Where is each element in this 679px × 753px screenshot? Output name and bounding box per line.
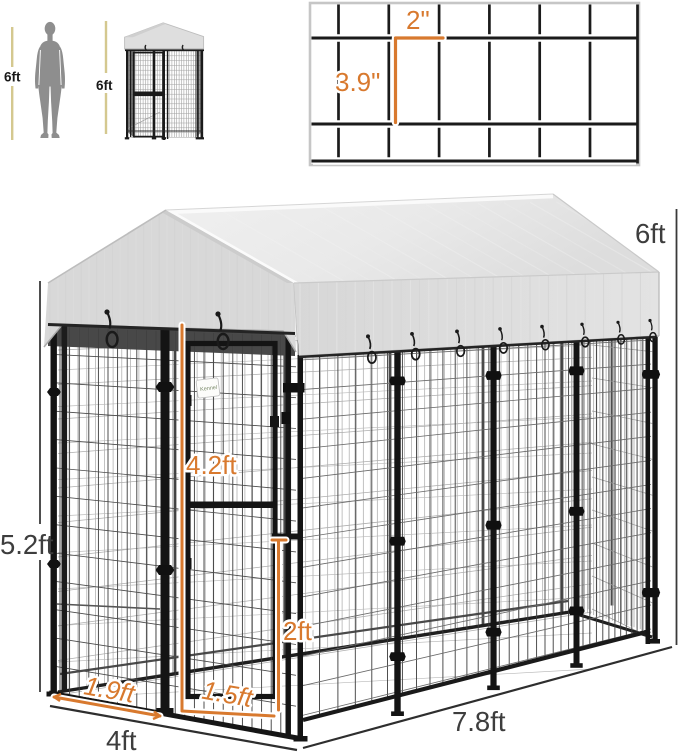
svg-text:3.9": 3.9" xyxy=(335,67,380,97)
svg-text:7.8ft: 7.8ft xyxy=(452,706,506,737)
svg-text:4.2ft: 4.2ft xyxy=(186,450,237,480)
svg-text:2": 2" xyxy=(406,5,430,35)
svg-text:4ft: 4ft xyxy=(106,725,137,753)
svg-text:6ft: 6ft xyxy=(4,70,21,85)
svg-text:5.2ft: 5.2ft xyxy=(0,529,54,560)
svg-text:2ft: 2ft xyxy=(283,616,313,646)
svg-text:6ft: 6ft xyxy=(96,78,113,93)
svg-text:6ft: 6ft xyxy=(635,218,666,249)
